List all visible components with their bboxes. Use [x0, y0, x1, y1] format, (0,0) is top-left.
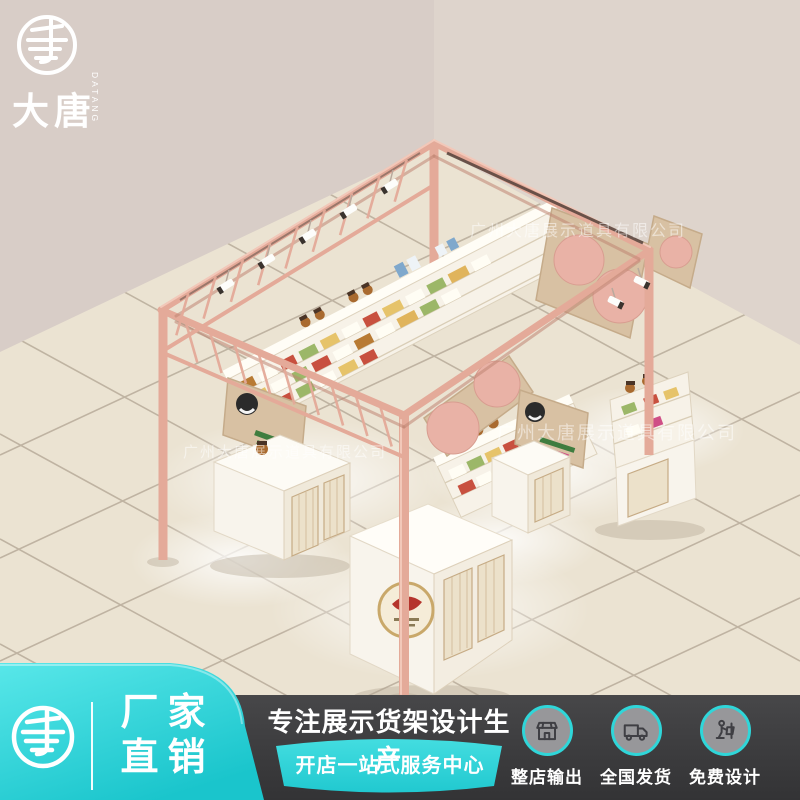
brand-emblem-icon — [14, 12, 80, 78]
watermark: 广州大唐展示道具有限公司 — [497, 419, 737, 445]
brand-logo: 大唐 — [14, 12, 134, 135]
store-icon — [522, 705, 573, 756]
feature-shipping: 全国发货 — [594, 705, 678, 788]
feature-whole-store: 整店输出 — [505, 705, 589, 788]
bottom-banner: 厂家 直销 专注展示货架设计生产 开店一站式服务中心 整店输出 — [0, 655, 800, 800]
truck-icon — [611, 705, 662, 756]
slogan-line1: 厂家 — [100, 691, 226, 736]
slogan-line2: 直销 — [100, 736, 226, 781]
brand-name: 大唐 — [12, 81, 134, 135]
design-icon — [700, 705, 751, 756]
factory-direct-slogan: 厂家 直销 — [100, 691, 226, 781]
cabinet-shadow — [595, 520, 705, 540]
feature-list: 整店输出 全国发货 — [505, 705, 767, 788]
watermark: 广州大唐展示道具有限公司 — [470, 217, 686, 241]
watermark: 广州大唐展示道具有限公司 — [183, 441, 387, 462]
cabinet-right — [492, 441, 570, 533]
feature-label: 免费设计 — [689, 763, 761, 788]
feature-label: 全国发货 — [600, 763, 672, 788]
brand-name-en: DATANG — [90, 72, 100, 124]
feature-design: 免费设计 — [683, 705, 767, 788]
ribbon-text: 开店一站式服务中心 — [277, 749, 503, 778]
feature-label: 整店输出 — [511, 763, 583, 788]
banner-divider — [91, 702, 93, 790]
banner-emblem-icon — [9, 703, 77, 771]
product-image: 广州大唐展示道具有限公司 广州大唐展示道具有限公司 广州大唐展示道具有限公司 大… — [0, 0, 800, 800]
